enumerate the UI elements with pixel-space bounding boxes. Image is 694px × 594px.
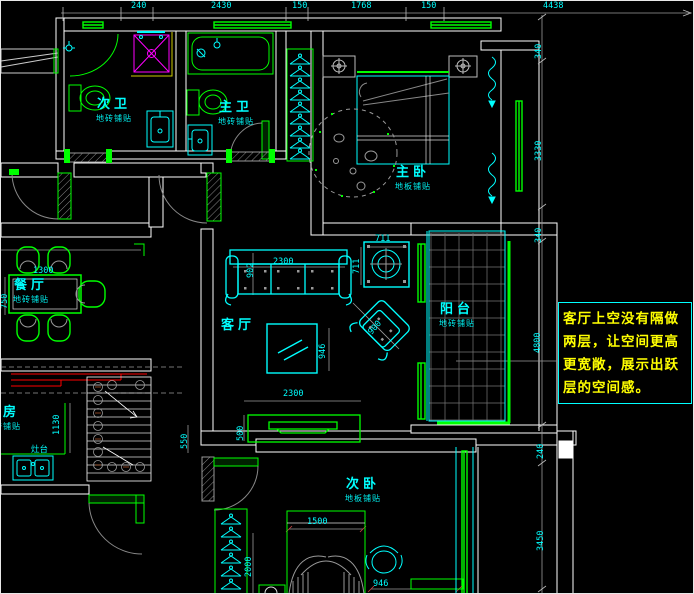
faucet-icon (63, 41, 75, 51)
wardrobe-icon (215, 509, 247, 594)
kitchen-wall-edge (1, 403, 65, 454)
staircase (87, 377, 151, 481)
note-line: 两层，让空间更高 (563, 331, 688, 354)
balcony-frame (427, 231, 510, 423)
curtain-icon (489, 57, 496, 203)
sink-icon (147, 111, 173, 147)
nightstand-icon (449, 56, 477, 77)
note-line: 更宽敞，展示出跃 (563, 354, 688, 377)
armchair-icon (348, 297, 414, 363)
wardrobe-icon (287, 49, 313, 161)
coffee-table-icon (267, 324, 317, 373)
desk-icon (411, 579, 463, 589)
doors (9, 34, 275, 554)
walls (1, 18, 576, 594)
dining-table-icon (9, 275, 81, 313)
nightstand-icon (323, 56, 355, 77)
exterior-shaft (1, 49, 58, 73)
faucet-icon (214, 38, 220, 48)
shower-icon (131, 32, 172, 76)
bed-secondary (287, 511, 365, 594)
toilet-icon (187, 90, 227, 115)
sofa-icon (226, 250, 352, 305)
balcony-tile-grid (429, 233, 505, 421)
kitchen-sink-icon (13, 456, 53, 480)
speaker-icon (364, 242, 409, 287)
desk-chair-icon (366, 546, 402, 573)
note-line: 客厅上空没有隔做 (563, 308, 688, 331)
cad-floorplan-view: 次卫地砖铺贴主卫地砖铺贴主卧地板铺贴餐厅地砖铺贴客厅阳台地砖铺贴厨房地砖铺贴次卧… (0, 0, 694, 594)
kitchen-counter (11, 374, 147, 386)
annotation-note: 客厅上空没有隔做两层，让空间更高更宽敞，展示出跃层的空间感。 (558, 302, 692, 404)
dining-chairs (17, 247, 105, 341)
bed-master (357, 72, 449, 164)
toilet-icon (69, 85, 110, 111)
floorplan-drawing (1, 1, 694, 594)
stool-icon (259, 585, 285, 594)
note-line: 层的空间感。 (563, 377, 688, 400)
bathtub-icon (188, 33, 273, 74)
